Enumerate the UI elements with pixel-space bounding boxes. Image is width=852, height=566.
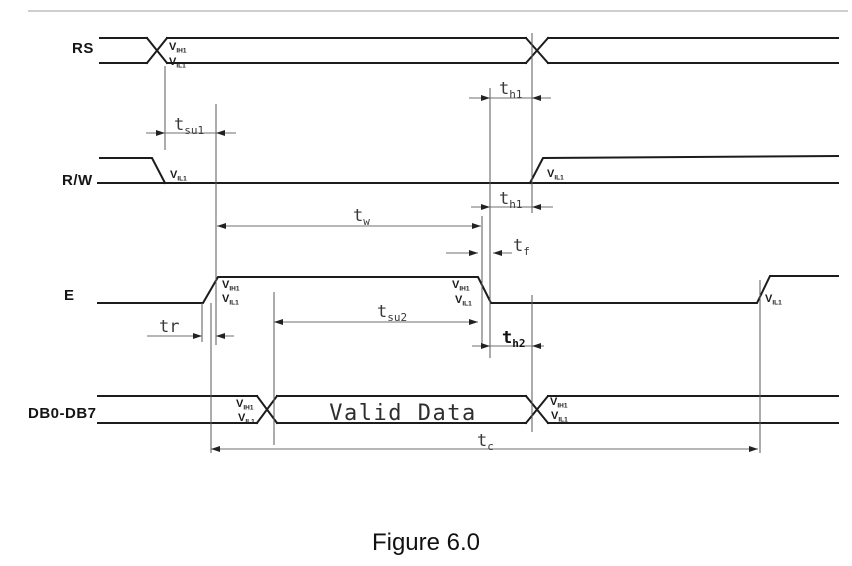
vih1-label-rs: VIH1 [169,41,187,55]
figure-caption: Figure 6.0 [372,529,480,556]
vil1-label-e-fall: VIL1 [455,294,472,308]
vil1-label-rs: VIL1 [169,56,186,70]
dimension-tw [217,223,481,229]
rw-waveform [98,156,838,183]
db-crossover-right [526,396,548,423]
rs-rails [100,38,838,63]
timing-diagram: RS VIH1 VIL1 R/W VIL1 VIL1 E VIH1 VIL1 V… [0,0,852,566]
vil1-label-e-rise2: VIL1 [765,293,782,307]
valid-data-label: Valid Data [329,401,476,426]
vih1-label-e-rise: VIH1 [222,279,240,293]
th2-label: th2 [502,328,526,350]
tr-label: tr [159,317,180,337]
rs-signal-label: RS [72,40,94,57]
vih1-label-db-left: VIH1 [236,398,254,412]
rw-high-fall [100,158,165,183]
rs-crossover-left [147,38,167,63]
rw-signal-label: R/W [62,172,93,189]
db-signal-label: DB0-DB7 [28,405,97,422]
vil1-label-db-right: VIL1 [551,410,568,424]
timing-diagram-page: RS VIH1 VIL1 R/W VIL1 VIL1 E VIH1 VIL1 V… [0,0,852,566]
vih1-label-db-right: VIH1 [550,396,568,410]
vil1-label-rw-rise: VIL1 [547,168,564,182]
rs-crossover-right [526,38,548,63]
tw-label: tw [353,206,370,228]
vil1-label-e-rise: VIL1 [222,293,239,307]
vil1-label-db-left: VIL1 [238,412,255,426]
vil1-label-rw-fall: VIL1 [170,169,187,183]
tr-arrows [193,333,225,339]
tsu1-label: tsu1 [174,115,204,137]
vih1-label-e-fall: VIH1 [452,279,470,293]
extension-lines [165,33,760,453]
e-signal-label: E [64,287,75,304]
th1-lower-label: th1 [499,189,523,211]
dimension-tsu2 [274,319,478,325]
th1-upper-label: th1 [499,79,523,101]
rs-waveform [100,38,838,63]
tsu2-label: tsu2 [377,302,407,324]
rw-rise-high [530,156,838,183]
tc-label: tc [477,431,494,453]
dimension-tf [446,250,512,256]
tf-label: tf [513,236,530,258]
tf-arrows [469,250,502,256]
